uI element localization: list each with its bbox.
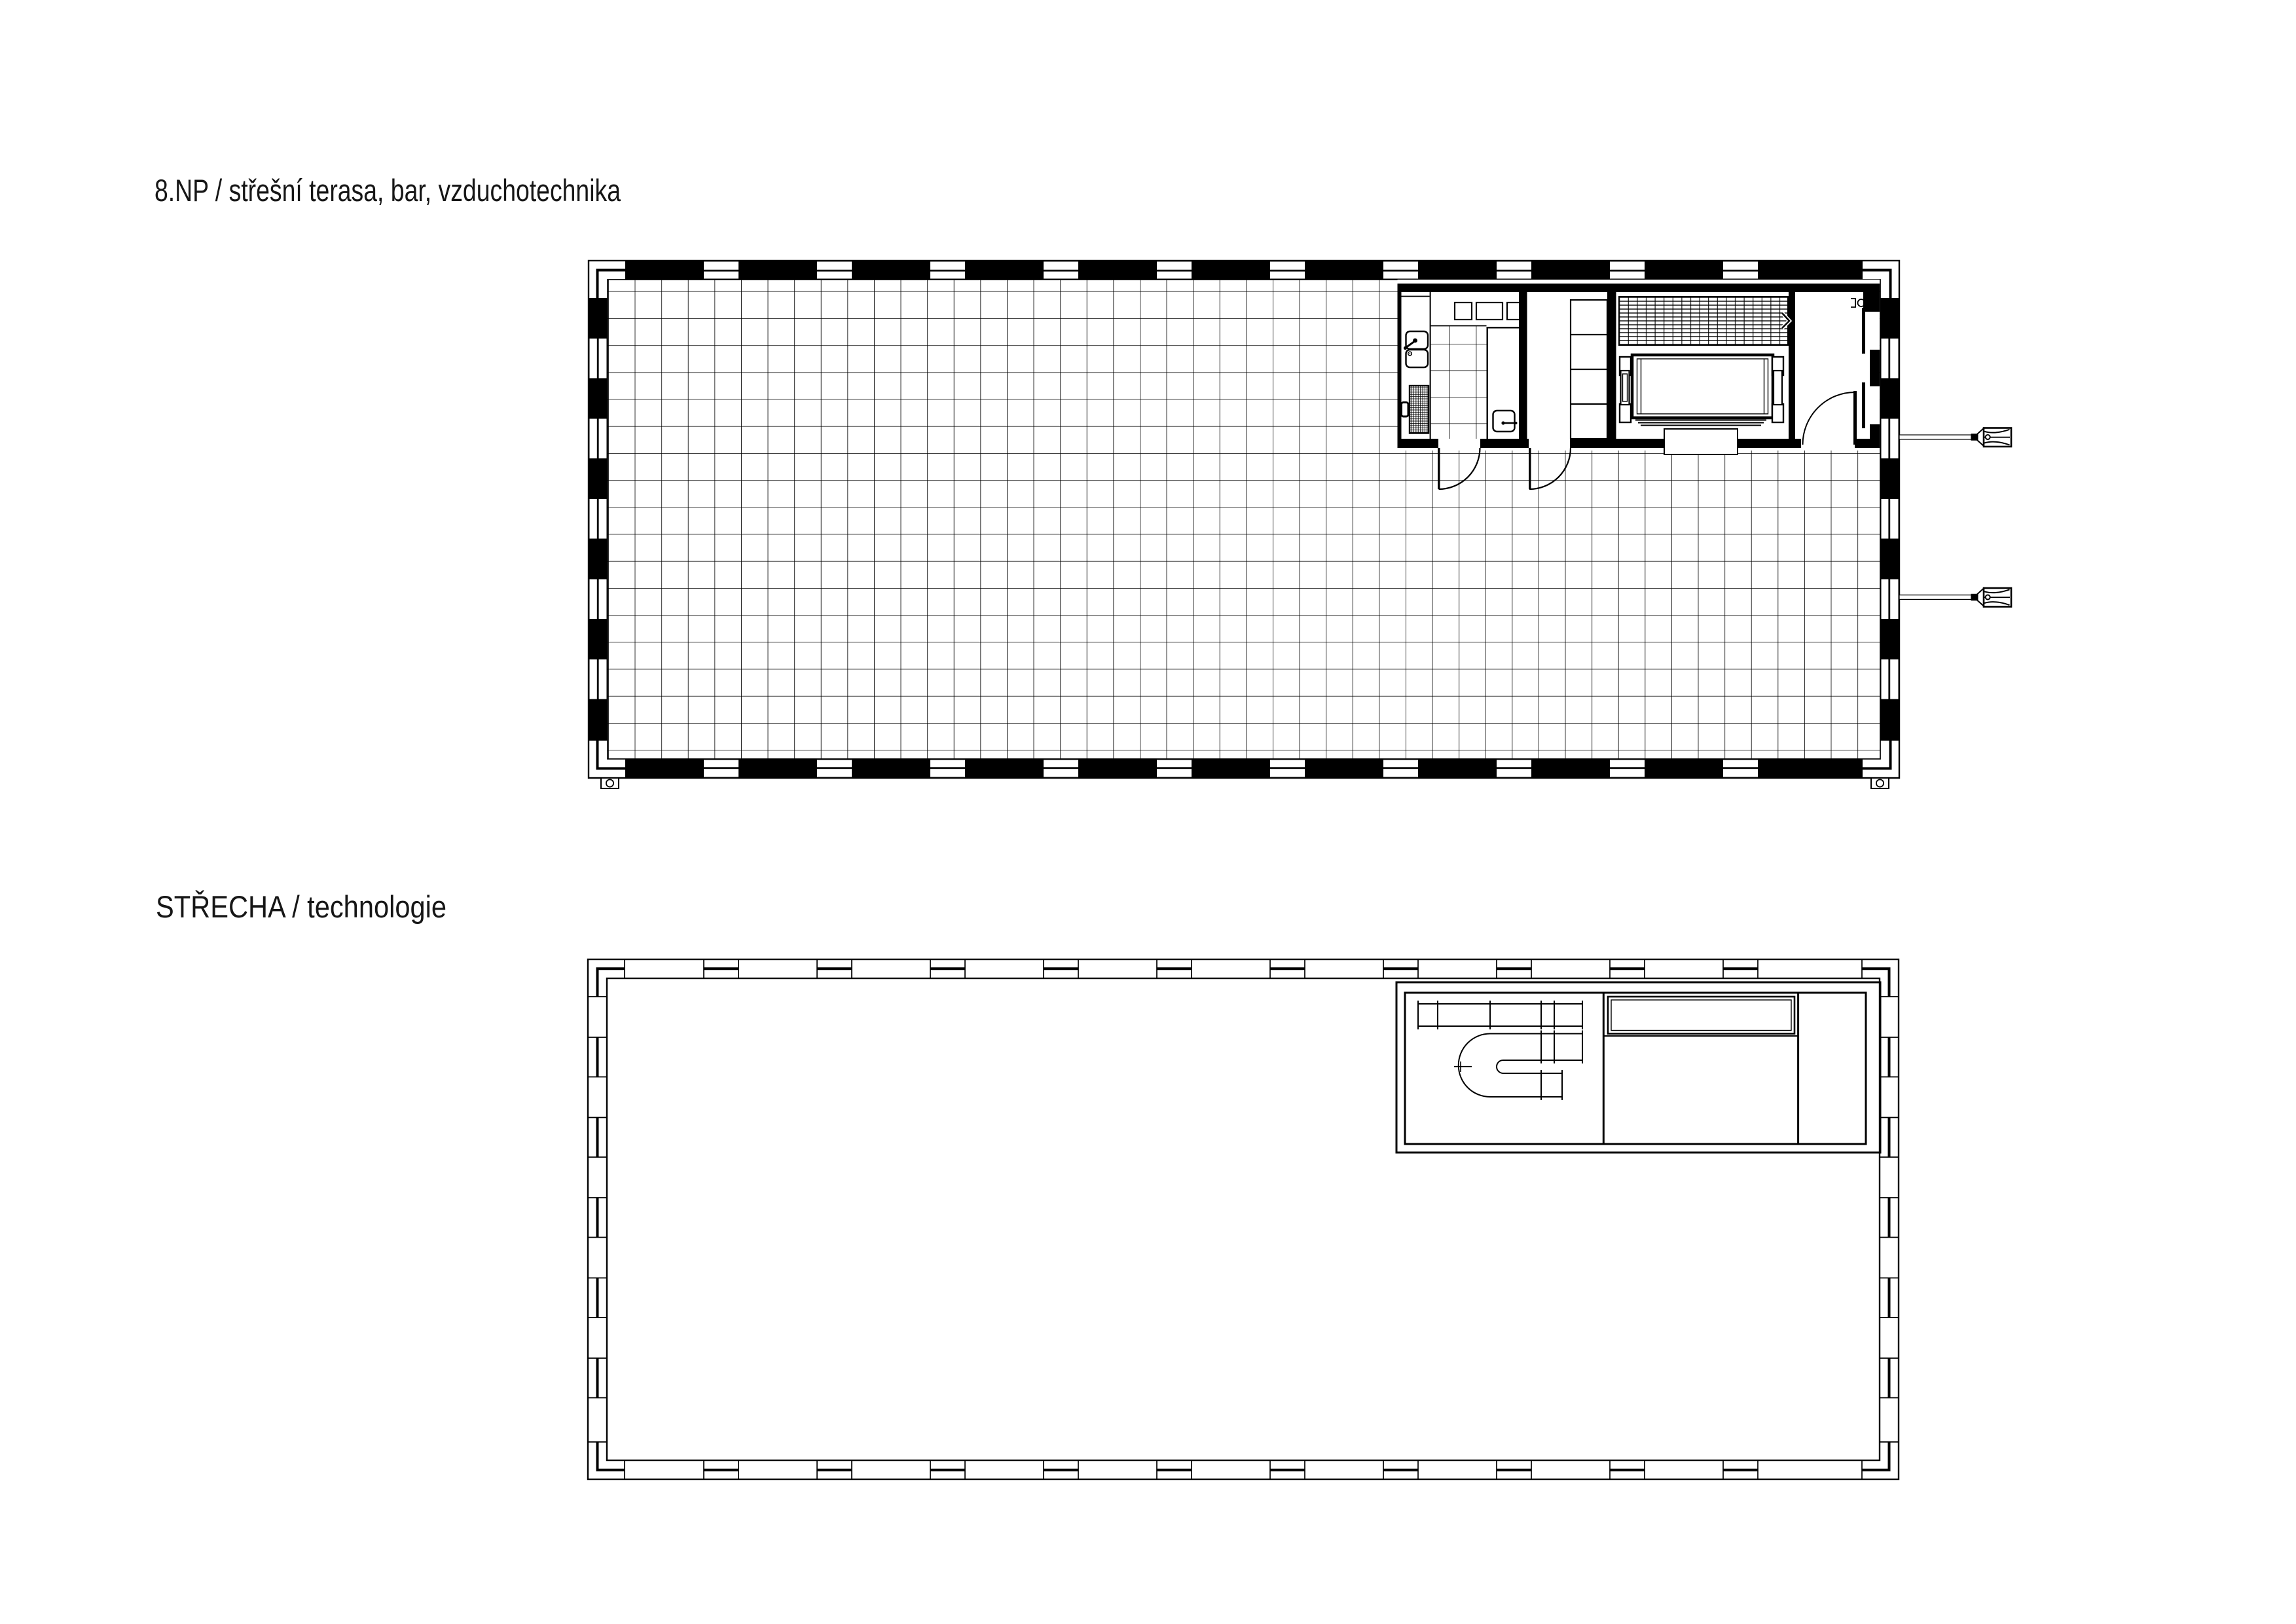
svg-text:STŘECHA / technologie: STŘECHA / technologie <box>156 889 446 924</box>
svg-text:8.NP / střešní terasa, bar, vz: 8.NP / střešní terasa, bar, vzduchotechn… <box>155 173 621 208</box>
